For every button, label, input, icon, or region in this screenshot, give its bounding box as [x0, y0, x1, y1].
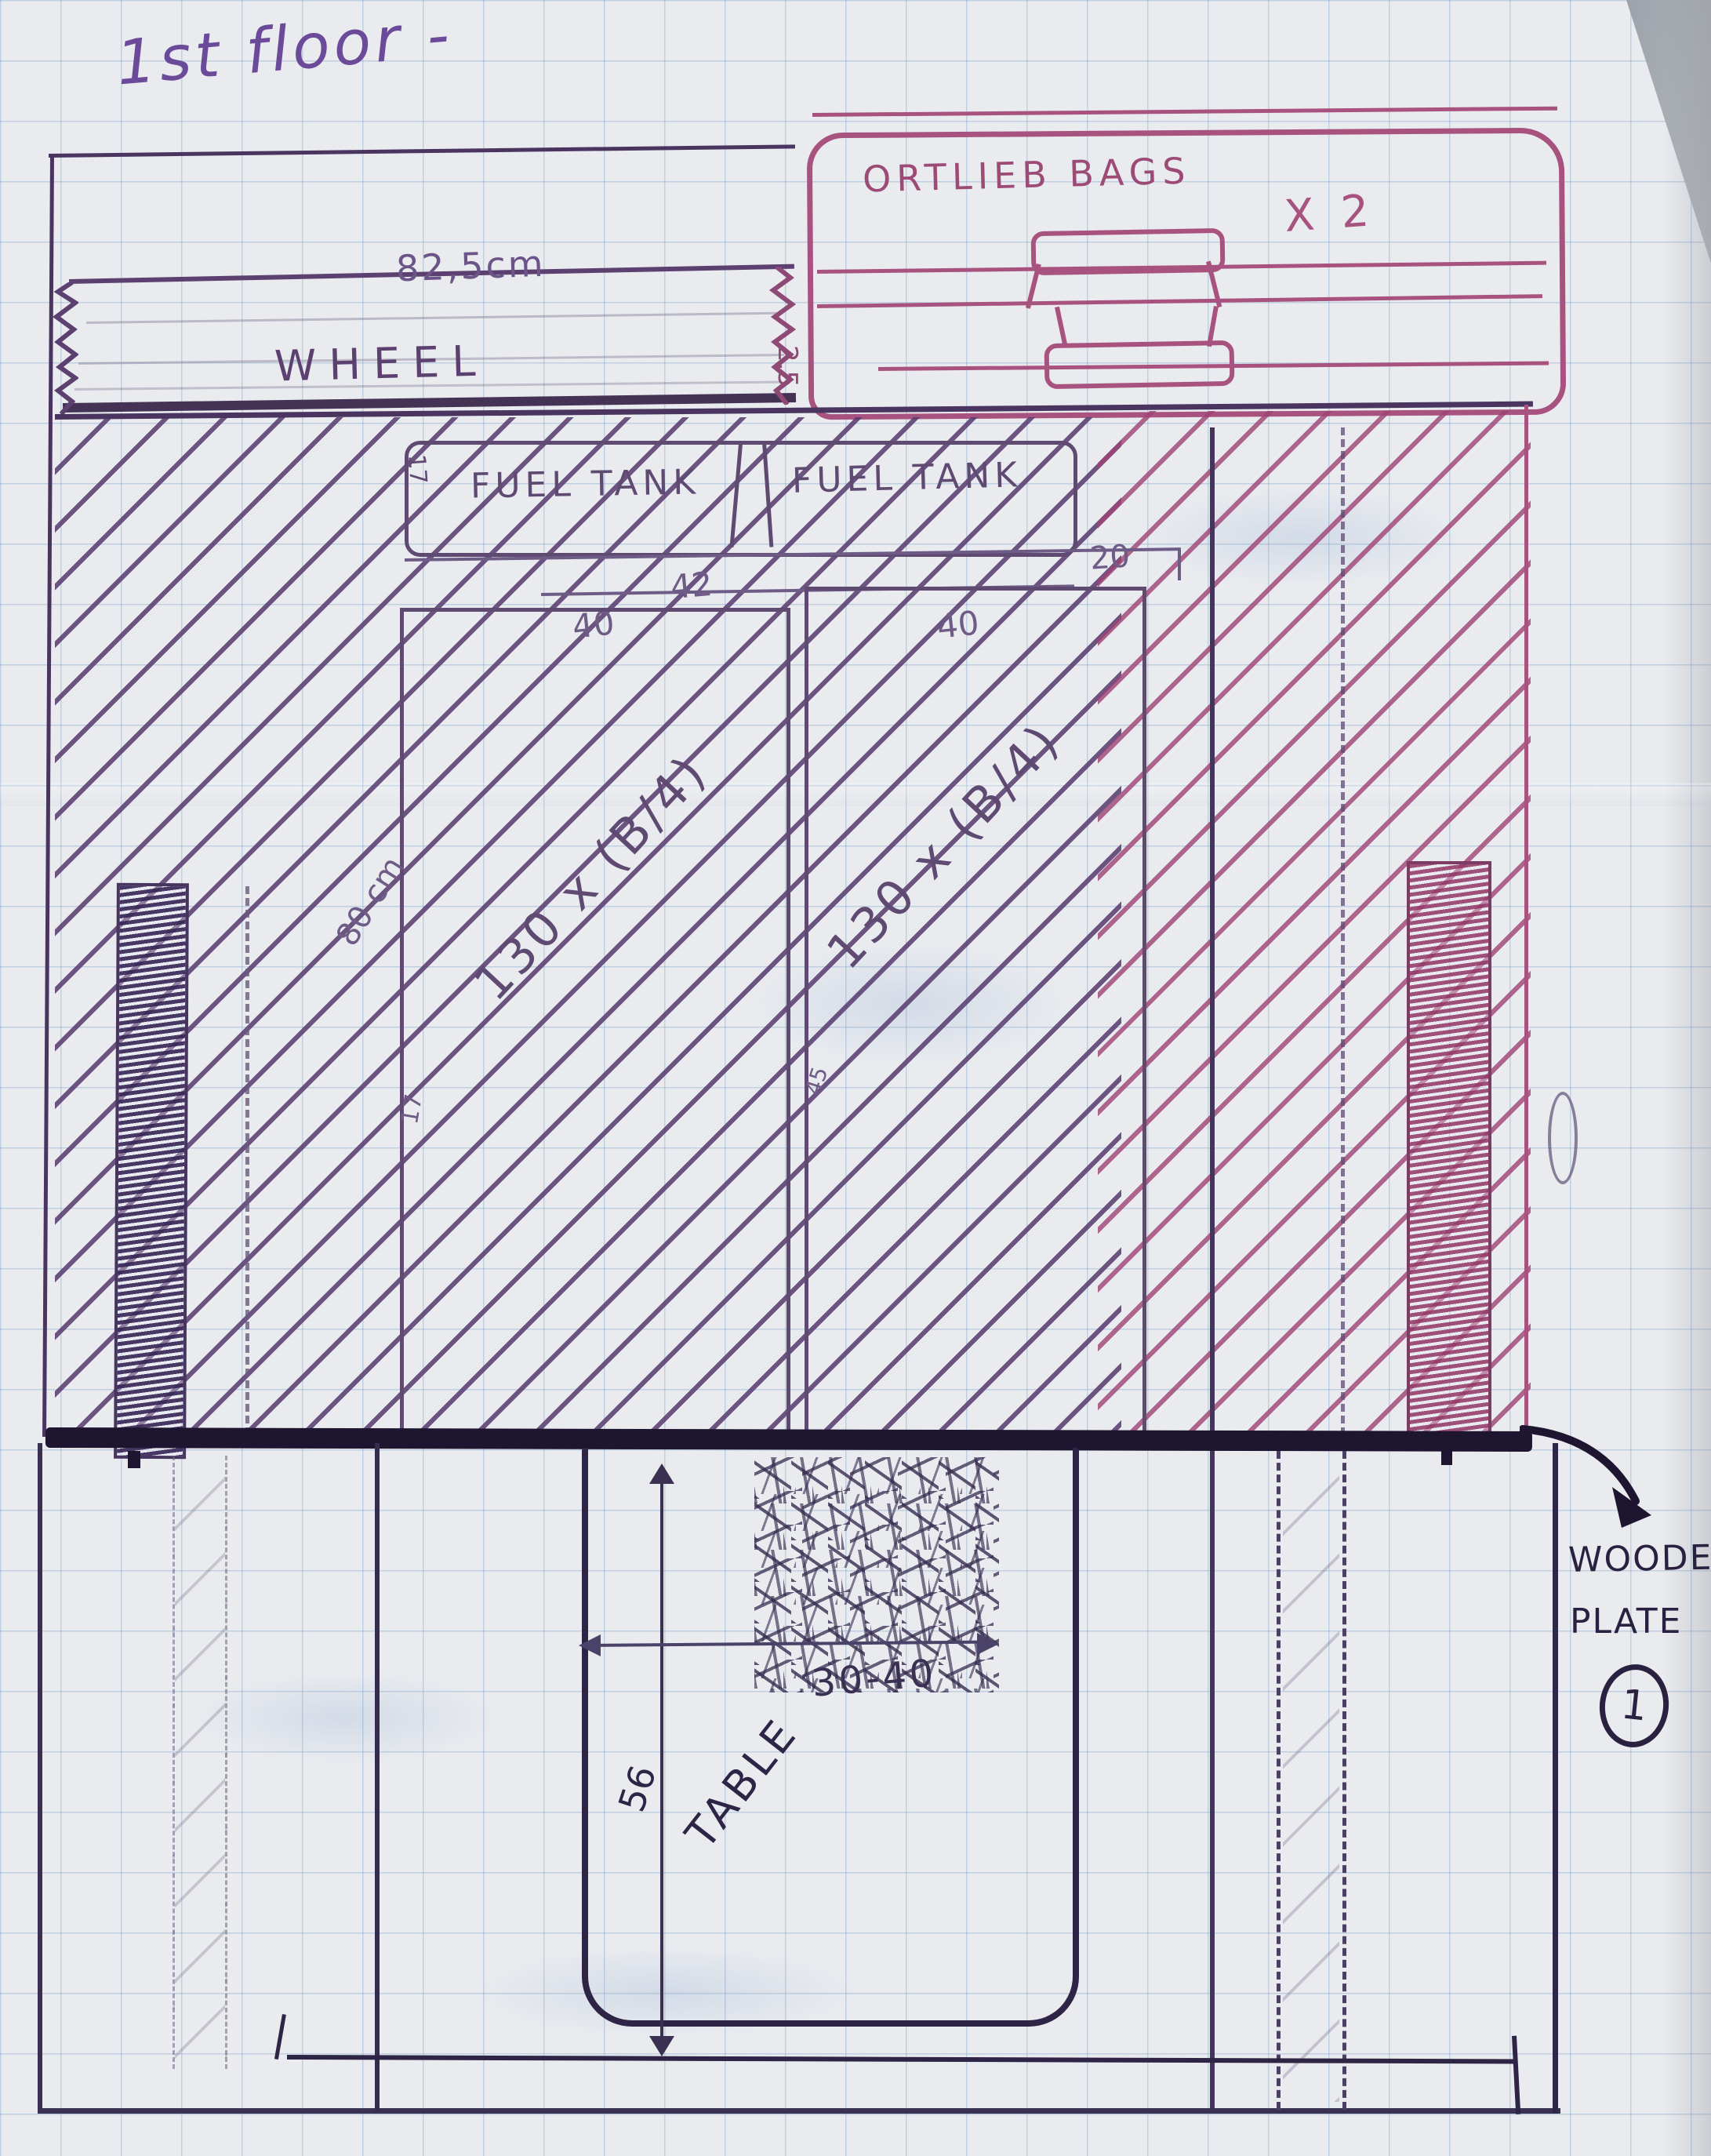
pencil-loop — [1548, 1092, 1578, 1184]
bed-right-rect-left-edge — [805, 587, 808, 1435]
dim-56-arrow-up — [649, 1463, 674, 1484]
solid-vertical-mid — [1210, 427, 1215, 2110]
dim-56-line — [660, 1474, 663, 2049]
wheel-width-dim: 82,5cm — [395, 242, 546, 290]
bed-left-rect-top-edge — [400, 608, 790, 612]
dim-3040-arrow-left — [579, 1634, 601, 1656]
dim-17-small: 17 — [396, 1092, 428, 1126]
wooden-plate-line1: WOODEN — [1568, 1537, 1711, 1580]
bed-left-rect-right-edge — [786, 608, 790, 1435]
lower-right-line — [1553, 1443, 1558, 2114]
lower-solid-vertical — [375, 1443, 380, 2111]
dim-20: 20 — [1088, 538, 1131, 576]
dashed-line-upper-left — [245, 886, 249, 1435]
fuel-side-dim: 17 — [402, 453, 432, 485]
dim-3040-arrow-right — [977, 1633, 999, 1655]
outer-top-line — [49, 144, 795, 158]
light-pencil-strip — [173, 1456, 227, 2069]
bag-handle-bottom — [1044, 340, 1235, 389]
bags-label: ORTLIEB BAGS — [862, 150, 1191, 201]
bench-hook-right — [1512, 2036, 1520, 2114]
ghost-smudge — [188, 1671, 502, 1765]
bag-handle-top — [1031, 228, 1226, 275]
fuel-tank-label-right: FUEL TANK — [791, 455, 1022, 501]
wheel-zigzag-left — [52, 282, 78, 414]
bed-right-rect-top-edge — [805, 587, 1146, 591]
bed-left-rect-left-edge — [400, 608, 404, 1435]
sketch-page: 1st floor - 82,5cm WHEEL 2,5 ORTLIEB BAG… — [0, 0, 1711, 2156]
floor-tick — [128, 1451, 140, 1468]
wheel-label: WHEEL — [274, 336, 489, 391]
scribble-strip-right — [1407, 861, 1491, 1445]
fuel-tank-label-left: FUEL TANK — [470, 462, 701, 506]
wooden-plate-number: 1 — [1618, 1681, 1649, 1730]
floor-tick — [1441, 1449, 1452, 1465]
bench-hook-left — [274, 2014, 286, 2060]
hatch-right-edge — [1524, 405, 1528, 1438]
lower-dashed-vertical — [1342, 1451, 1346, 2110]
lower-left-line — [38, 1443, 42, 2110]
dim-40-right: 40 — [935, 603, 981, 645]
wooden-plate-arrow — [1520, 1416, 1661, 1534]
bed-right-rect-right-edge — [1142, 587, 1146, 1435]
hatch-area-left — [55, 417, 1121, 1435]
dim-42: 42 — [669, 565, 714, 606]
bags-quantity: X 2 — [1283, 185, 1377, 242]
dashed-line-upper-right — [1341, 427, 1345, 1435]
wooden-plate-line2: PLATE — [1570, 1602, 1682, 1642]
lower-light-hatch — [1283, 1459, 1339, 2102]
bags-top-line — [812, 107, 1557, 117]
wheel-inner-line — [86, 312, 776, 324]
wheel-side-dim: 2,5 — [772, 345, 803, 387]
dim-tick — [1178, 549, 1181, 580]
page-title: 1st floor - — [114, 0, 456, 100]
scribble-strip-left — [114, 883, 189, 1459]
wooden-plate-number-badge: 1 — [1596, 1661, 1673, 1751]
paper-edge-shade — [1662, 0, 1711, 2156]
lower-bottom-line — [38, 2108, 1560, 2114]
dim-56-arrow-down — [649, 2036, 674, 2056]
lower-dashed-vertical — [1277, 1451, 1281, 2110]
